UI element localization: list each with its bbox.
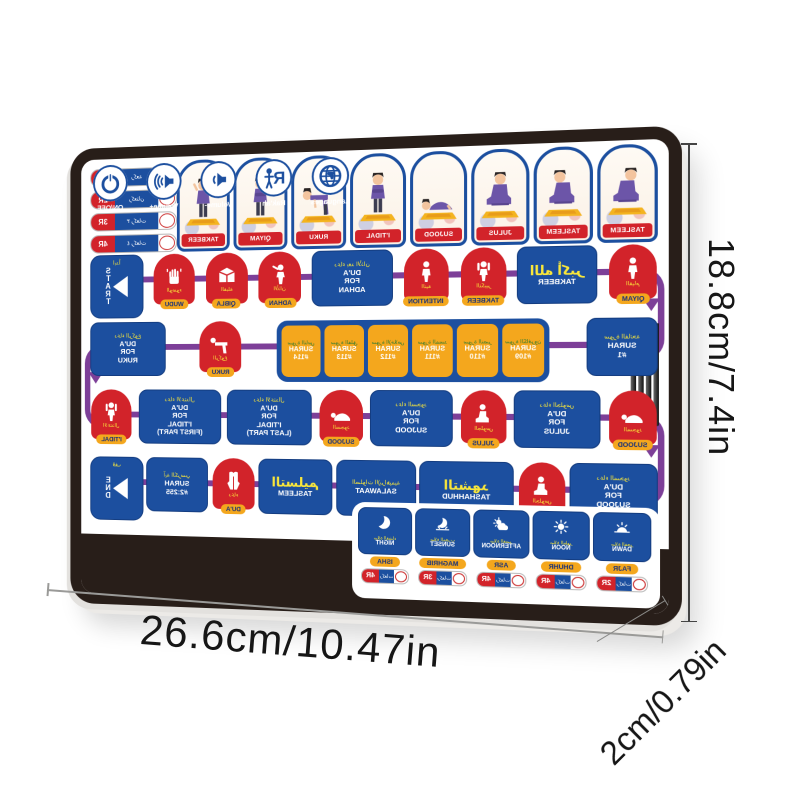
- power-icon: [93, 164, 128, 202]
- control-label: Languages: [311, 196, 350, 206]
- arabic-label: السجود: [624, 427, 642, 433]
- arabic-label: الركوع: [213, 355, 227, 361]
- step-label: RUKU: [207, 367, 234, 377]
- time-label: DAWN: [612, 547, 632, 555]
- pose-label: TASLEEM: [539, 225, 588, 240]
- button-label: TASHAHHUD: [442, 493, 490, 503]
- dua-label-line: SALAWAAT: [355, 487, 396, 496]
- surah-label: SURAH: [419, 346, 444, 354]
- pose-kid-illustration: [541, 160, 586, 225]
- step-button-takbeer[interactable]: التكبير TAKBEER: [459, 247, 507, 306]
- step-label: DU'A: [221, 504, 245, 514]
- sequence-row-3: الاعتدال I'TIDAL دعاء الاعتدال DU'AFORI'…: [90, 389, 658, 464]
- pose-label: TAKBEER: [182, 233, 225, 247]
- prostrate-icon: السجود: [319, 390, 362, 442]
- button-tasleem[interactable]: التسليم TASLEEM: [259, 459, 333, 516]
- surah-label: SURAH: [608, 341, 637, 350]
- control-volume[interactable]: Volume-: [198, 160, 240, 209]
- step-label: TAKBEER: [462, 295, 504, 306]
- rakah-count-4r: ركعات 4R: [536, 573, 587, 590]
- arabic-label: الجلوس: [532, 498, 551, 505]
- button-takbeer[interactable]: الله أكبر TAKBEER: [517, 245, 597, 304]
- time-label: SUNSET: [430, 542, 455, 550]
- surah-number: #113: [336, 354, 351, 362]
- toggle-knob: [395, 571, 407, 582]
- prayer-time-asr: صلاة العصر AFTERNOON ASR ركعات 4R: [473, 509, 529, 599]
- rakah-count-label: 2R: [597, 576, 615, 590]
- rakah-arabic-label: ٣ ركعات: [115, 213, 158, 231]
- depth-dimension-label: 2cm/0.79in: [593, 631, 734, 772]
- rakah-count-4r: ركعات 4R: [476, 572, 526, 589]
- dua-label-line: RUKU: [118, 356, 138, 364]
- dua-button-du-a-for-adhan[interactable]: دعاء بعد الأذان DU'AFORADHAN: [312, 249, 393, 306]
- time-label: NOON: [552, 545, 571, 553]
- toggle-knob: [159, 235, 175, 250]
- surah-number: #1: [617, 350, 626, 359]
- start-label: START: [105, 268, 110, 306]
- prayer-times-panel: صلاة العشاء NIGHT ISHA ركعات 4R صلاة الم…: [352, 502, 660, 609]
- arabic-calligraphy: الله أكبر: [530, 262, 585, 278]
- sequence-row-1: ابدأ START الوضوء WUDU القبلة QIBLA الأذ…: [90, 244, 658, 323]
- time-label: AFTERNOON: [482, 543, 521, 551]
- prayer-button-dhuhr[interactable]: صلاة الظهر NOON: [533, 511, 590, 561]
- surah-button-110[interactable]: سورة النصر SURAH #110: [457, 324, 498, 377]
- dua-label-line: ADHAN: [339, 286, 366, 295]
- pose-kid-illustration: [357, 167, 399, 230]
- control-label: Volume+: [150, 201, 179, 211]
- stand-icon: القيام: [609, 244, 657, 299]
- rakah-count-label: 3R: [91, 214, 115, 231]
- start-button[interactable]: ابدأ START: [90, 254, 143, 318]
- surah-number: #110: [469, 354, 485, 362]
- toggle-knob: [572, 577, 585, 589]
- time-label: NIGHT: [376, 540, 395, 548]
- sunset-icon: [433, 516, 451, 538]
- tablet-face: ركعة 1R ركعتان 2R ٣ ركعات 3R ٤ ركعات 4R …: [81, 139, 669, 615]
- surah-button-2-255[interactable]: آية الكرسي SURAH #2:255: [147, 457, 209, 512]
- step-label: WUDU: [160, 299, 188, 309]
- surah-button-114[interactable]: سورة الناس SURAH #114: [281, 325, 320, 377]
- pose-kid-illustration: [417, 165, 460, 229]
- arabic-label: دعاء: [229, 492, 239, 498]
- control-on-off[interactable]: ON/OFF: [90, 164, 130, 212]
- rakah-arabic-label: ركعات: [495, 573, 511, 587]
- prayer-name-label: FAJR: [606, 563, 639, 574]
- prayer-button-asr[interactable]: صلاة العصر AFTERNOON: [473, 509, 529, 558]
- handsup-icon: الاعتدال: [91, 389, 131, 439]
- pose-label: JULUS: [476, 226, 524, 240]
- vol-plus-icon: [146, 162, 181, 200]
- surah-label: SURAH: [510, 345, 536, 353]
- step-button-qibla[interactable]: القبلة QIBLA: [205, 252, 249, 308]
- step-button-adhan[interactable]: الأذان ADHAN: [258, 251, 303, 308]
- pose-label: I'TIDAL: [355, 229, 401, 243]
- step-button-wudu[interactable]: الوضوء WUDU: [152, 253, 195, 309]
- cloud-sun-icon: [492, 517, 511, 539]
- surah-label: SURAH: [464, 345, 490, 353]
- play-triangle-icon: [113, 478, 128, 499]
- dawn-icon: [612, 520, 631, 542]
- control-label: Volume-: [205, 200, 233, 210]
- svg-text:R: R: [273, 168, 285, 188]
- prayer-time-dhuhr: صلاة الظهر NOON DHUHR ركعات 4R: [533, 511, 590, 601]
- prayer-button-maghrib[interactable]: صلاة المغرب SUNSET: [415, 508, 470, 557]
- duahands-icon: دعاء: [213, 458, 255, 510]
- toggle-knob: [453, 573, 465, 585]
- rakah-count-label: 4R: [91, 236, 115, 253]
- rakah-toggle-3r[interactable]: ٣ ركعات 3R: [90, 211, 177, 232]
- pose-kid-illustration: [605, 158, 650, 224]
- rakah-count-4r: ركعات 4R: [361, 568, 409, 585]
- dua-button-du-a-for-sujood[interactable]: دعاء السجود DU'AFORSUJOOD: [370, 390, 453, 447]
- step-button-du-a[interactable]: دعاء DU'A: [212, 458, 256, 515]
- rakah-count-label: 3R: [419, 571, 436, 585]
- surah-number: #112: [380, 354, 395, 362]
- surah-label: SURAH: [289, 346, 313, 354]
- step-button-qiyam[interactable]: القيام QIYAM: [608, 244, 658, 304]
- arabic-label: التكبير: [476, 283, 491, 289]
- pose-arch-4-sujood[interactable]: SUJOOD: [410, 150, 467, 247]
- arabic-label: الاعتدال: [103, 423, 119, 429]
- step-label: JULUS: [467, 438, 499, 449]
- arabic-label: النية: [421, 284, 431, 290]
- play-triangle-icon: [113, 276, 128, 297]
- pose-label: QIYAM: [238, 232, 282, 246]
- surah-number: #2:255: [166, 488, 188, 497]
- moon-icon: [376, 514, 394, 536]
- control-label: Rak'ah: [262, 198, 285, 208]
- control-rak-ah[interactable]: R Rak'ah: [253, 158, 295, 208]
- control-buttons: ON/OFF Volume+ Volume- R Rak'ah Language…: [90, 156, 352, 212]
- rakah-count-label: 4R: [362, 569, 379, 583]
- prayer-button-fajr[interactable]: صلاة الفجر DAWN: [593, 512, 651, 562]
- pose-kid-illustration: [478, 163, 522, 228]
- surah-label: SURAH: [332, 346, 357, 354]
- vol-minus-icon: [200, 160, 236, 198]
- prayer-tablet-device: ركعة 1R ركعتان 2R ٣ ركعات 3R ٤ ركعات 4R …: [70, 126, 682, 627]
- rakah-arabic-label: ركعات: [616, 577, 632, 591]
- surah-label: SURAH: [375, 346, 400, 354]
- arabic-label: الأذان: [274, 286, 286, 292]
- prayer-name-label: MAGHRIB: [420, 558, 466, 570]
- rakah-arabic-label: ركعات: [379, 570, 394, 584]
- step-label: SUJOOD: [613, 439, 654, 450]
- arabic-label: ابدأ: [113, 260, 120, 267]
- toggle-knob: [633, 579, 646, 591]
- surah-button-111[interactable]: سورة المسد SURAH #111: [412, 324, 453, 377]
- rakah-arabic-label: ٤ ركعات: [115, 235, 158, 252]
- height-dimension-label: 18.8cm/7.4in: [700, 238, 742, 456]
- pose-arch-3-i-tidal[interactable]: I'TIDAL: [350, 152, 406, 248]
- surah-button-112[interactable]: سورة الإخلاص SURAH #112: [368, 325, 408, 377]
- pose-label: RUKU: [296, 230, 341, 244]
- prayer-time-isha: صلاة العشاء NIGHT ISHA ركعات 4R: [358, 507, 412, 595]
- bow-icon: الركوع: [200, 321, 242, 372]
- sun-icon: [552, 518, 571, 540]
- product-photo-canvas: ركعة 1R ركعتان 2R ٣ ركعات 3R ٤ ركعات 4R …: [0, 0, 800, 800]
- prayer-name-label: ASR: [487, 560, 516, 571]
- dua-label-line: JULUS: [544, 427, 570, 436]
- surah-button-109[interactable]: سورة الكافرون SURAH #109: [502, 323, 544, 377]
- sequence-row-2: دعاء الركوع DU'AFORRUKU الركوع RUKU سورة…: [90, 317, 658, 390]
- step-button-intention[interactable]: النية INTENTION: [403, 248, 450, 306]
- step-label: QIYAM: [616, 293, 649, 304]
- arabic-label: الجلوس: [474, 426, 493, 432]
- end-button[interactable]: قف END: [90, 456, 143, 520]
- arabic-label: القيام: [626, 281, 640, 287]
- rakah-toggle-4r[interactable]: ٤ ركعات 4R: [90, 233, 177, 253]
- rakah-icon: R: [256, 158, 293, 197]
- arabic-label: السجود: [333, 425, 350, 431]
- dua-label-line: (LAST PART): [247, 429, 292, 438]
- step-button-i-tidal[interactable]: الاعتدال I'TIDAL: [90, 389, 132, 444]
- step-label: ADHAN: [264, 298, 296, 308]
- end-label: END: [105, 477, 110, 500]
- stand-icon: النية: [404, 248, 449, 301]
- prostrate-icon: السجود: [609, 391, 657, 446]
- muezzin-icon: الأذان: [259, 251, 302, 303]
- step-label: INTENTION: [403, 296, 449, 307]
- arabic-label: قف: [113, 461, 121, 468]
- wudu-icon: الوضوء: [153, 253, 194, 304]
- dua-button-du-a-for-julus[interactable]: دعاء الجلوس DU'AFORJULUS: [514, 390, 601, 448]
- toggle-knob: [159, 213, 175, 228]
- dua-label-line: SUJOOD: [395, 426, 427, 435]
- surah-number: #111: [424, 354, 439, 362]
- step-button-sujood[interactable]: السجود SUJOOD: [608, 391, 658, 451]
- dua-button-du-a-for-i-tidal-last-part[interactable]: دعاء الاعتدال DU'AFORI'TIDAL(LAST PART): [227, 390, 312, 446]
- arabic-label: الوضوء: [166, 288, 181, 294]
- rakah-arabic-label: ركعات: [555, 575, 571, 589]
- arabic-label: القبلة: [221, 287, 233, 293]
- step-button-julus[interactable]: الجلوس JULUS: [460, 390, 508, 448]
- rakah-count-3r: ركعات 3R: [418, 570, 467, 587]
- step-button-ruku[interactable]: الركوع RUKU: [199, 321, 243, 377]
- dua-button-du-a-for-ruku[interactable]: دعاء الركوع DU'AFORRUKU: [90, 322, 165, 376]
- prayer-name-label: ISHA: [370, 556, 400, 567]
- prayer-time-fajr: صلاة الفجر DAWN FAJR ركعات 2R: [593, 512, 651, 603]
- pose-label: TASLEEM: [603, 223, 653, 238]
- sit-icon: الجلوس: [461, 390, 506, 443]
- surah-group: سورة الناس SURAH #114 سورة الفلق SURAH #…: [276, 318, 549, 382]
- control-languages[interactable]: Languages: [309, 156, 352, 206]
- kaaba-icon: القبلة: [206, 252, 248, 304]
- globe-icon: [312, 156, 349, 195]
- prayer-name-label: DHUHR: [541, 561, 581, 573]
- pose-arch-6-tasleem[interactable]: TASLEEM: [534, 146, 593, 245]
- surah-button-1[interactable]: سورة الفاتحة SURAH #1: [587, 317, 658, 376]
- dua-label-line: (FIRST PART): [157, 428, 202, 437]
- pose-arch-5-julus[interactable]: JULUS: [471, 148, 529, 246]
- button-label: TASLEEM: [278, 490, 312, 499]
- button-label: TAKBEER: [538, 278, 576, 287]
- surah-number: #109: [515, 353, 531, 361]
- prayer-time-maghrib: صلاة المغرب SUNSET MAGHRIB ركعات 3R: [415, 508, 470, 597]
- step-label: QIBLA: [212, 299, 241, 309]
- surah-button-113[interactable]: سورة الفلق SURAH #113: [324, 325, 364, 377]
- step-button-sujood[interactable]: السجود SUJOOD: [318, 390, 363, 447]
- step-label: I'TIDAL: [96, 434, 126, 444]
- prayer-button-isha[interactable]: صلاة العشاء NIGHT: [358, 507, 412, 556]
- control-label: ON/OFF: [97, 203, 123, 212]
- step-label: SUJOOD: [322, 437, 359, 447]
- pose-label: SUJOOD: [415, 228, 462, 242]
- surah-number: #114: [293, 354, 308, 362]
- dua-button-du-a-for-i-tidal-first-part[interactable]: دعاء الاعتدال DU'AFORI'TIDAL(FIRST PART): [138, 389, 220, 444]
- pose-arch-7-tasleem[interactable]: TASLEEM: [597, 143, 658, 243]
- rakah-arabic-label: ركعات: [436, 571, 451, 585]
- rakah-count-label: 4R: [537, 575, 555, 589]
- control-volume[interactable]: Volume+: [143, 162, 184, 211]
- height-dimension-line: [688, 143, 690, 622]
- rakah-count-label: 4R: [477, 573, 495, 587]
- handsup-icon: التكبير: [460, 247, 505, 301]
- toggle-knob: [512, 575, 525, 587]
- rakah-count-2r: ركعات 2R: [596, 575, 648, 592]
